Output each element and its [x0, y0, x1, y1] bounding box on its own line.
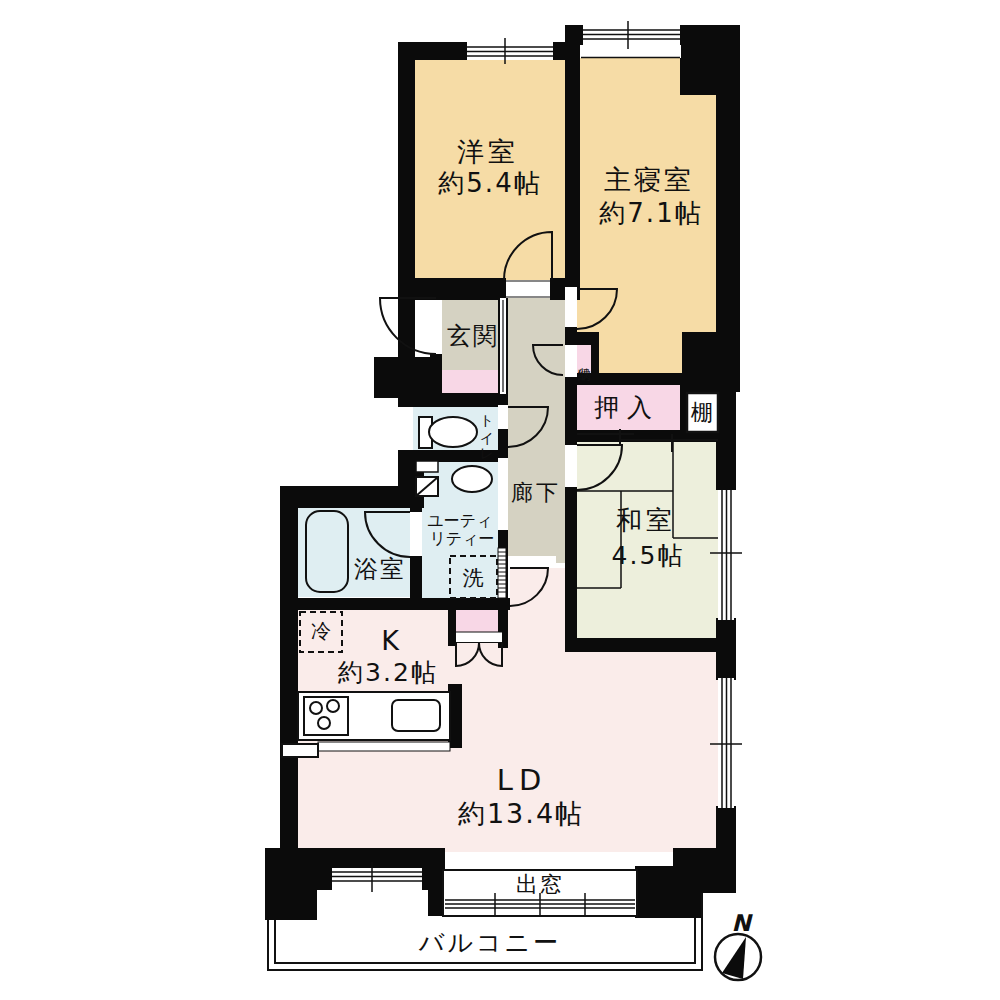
hallway-label: 廊下 — [511, 481, 561, 504]
wash-basin — [452, 466, 492, 492]
wall-niche — [282, 744, 318, 757]
toilet-label: トイレ — [480, 405, 495, 456]
western-room-label: 洋室 — [457, 138, 519, 166]
refrigerator-label: 冷 — [311, 621, 331, 642]
washer-label: 洗 — [463, 567, 484, 589]
living-dining-label: LD — [497, 765, 548, 795]
counter-edge — [318, 742, 450, 751]
pipe-space-upper — [416, 461, 438, 472]
utility-label-line2: リティー — [429, 531, 494, 548]
shelf-label: 棚 — [691, 401, 713, 424]
kitchen-label: K — [381, 627, 399, 655]
toilet-bowl — [429, 417, 477, 447]
compass-north-label: N — [731, 911, 750, 935]
japanese-room-floor — [575, 438, 718, 640]
hallway-floor — [506, 283, 567, 563]
oshiire-label: 押入 — [594, 395, 660, 421]
ld-closet — [456, 610, 502, 634]
entrance-label: 玄関 — [447, 324, 499, 349]
kitchen-size: 約3.2帖 — [338, 660, 438, 686]
bathroom-label: 浴室 — [354, 557, 406, 582]
master-bedroom-label: 主寝室 — [604, 166, 694, 194]
bay-window-label: 出窓 — [516, 873, 564, 896]
living-dining-size: 約13.4帖 — [458, 800, 584, 828]
master-bedroom-size: 約7.1帖 — [599, 200, 702, 227]
balcony-label: バルコニー — [419, 930, 561, 956]
master-bedroom-nook-floor — [595, 330, 685, 380]
shoe-cabinet — [442, 370, 502, 396]
japanese-room-label: 和室 — [616, 507, 676, 534]
floor-plan: 洋室 約5.4帖 主寝室 約7.1帖 玄関 収納 押入 棚 廊下 トイレ 和室 … — [0, 0, 1000, 1000]
storage-floor — [577, 343, 591, 375]
japanese-room-size: 4.5帖 — [612, 543, 685, 569]
utility-label-line1: ユーティ — [427, 513, 492, 530]
storage-label: 収納 — [577, 357, 591, 359]
western-room-size: 約5.4帖 — [438, 170, 541, 197]
